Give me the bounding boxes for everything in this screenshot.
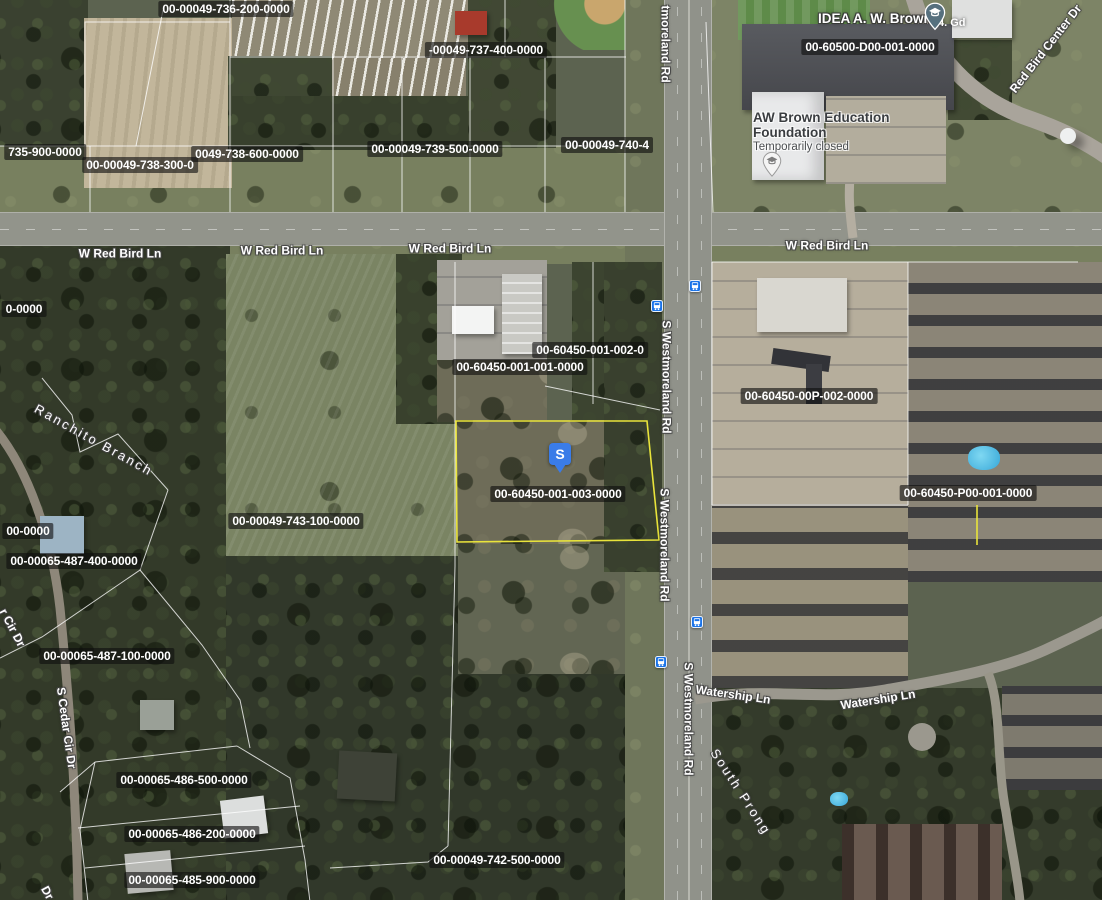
selected-parcel-marker[interactable]: S [549,443,571,465]
parcel-id-label[interactable]: 00-60450-001-001-0000 [452,359,587,375]
road-label: W Red Bird Ln [786,240,869,253]
road-label: Dr [38,884,56,900]
parcel-id-label[interactable]: -00049-737-400-0000 [425,42,547,58]
road-label: W Red Bird Ln [79,248,162,261]
poi-school-label[interactable]: IDEA A. W. Brown [818,11,932,26]
bus-stop-icon[interactable] [655,656,667,668]
parcel-id-label[interactable]: 00-60450-P00-001-0000 [900,485,1037,501]
parcel-id-label[interactable]: 00-00065-487-100-0000 [39,648,174,664]
poi-foundation-label[interactable]: AW Brown Education Foundation Temporaril… [753,110,890,155]
parcel-id-label[interactable]: 00-00049-739-500-0000 [367,141,502,157]
selected-parcel-marker-letter: S [555,446,564,462]
road-label: r Cir Dr [0,607,27,650]
poi-foundation-name-line1: AW Brown Education [753,110,890,125]
road-label: Watership Ln [695,683,772,706]
parcel-id-label[interactable]: 00-60450-001-003-0000 [490,486,625,502]
parcel-id-label[interactable]: 00-00049-738-300-0 [82,157,198,173]
parcel-id-label[interactable]: 735-900-0000 [4,144,86,160]
bus-stop-icon[interactable] [689,280,701,292]
parcel-id-label[interactable]: 00-60450-001-002-0 [532,342,648,358]
school-pin-icon[interactable] [924,2,946,31]
parcel-id-label[interactable]: 0049-738-600-0000 [191,146,303,162]
parcel-id-label[interactable]: 00-60500-D00-001-0000 [801,39,938,55]
road-label: S Cedar Cir Dr [54,686,78,769]
road-label: S Westmoreland Rd [660,320,673,433]
bus-stop-icon[interactable] [691,616,703,628]
parcel-id-label[interactable]: 00-00065-486-500-0000 [116,772,251,788]
parcel-id-label[interactable]: 00-00065-485-900-0000 [124,872,259,888]
road-label: Red Bird Center Dr [1008,2,1085,95]
parcel-id-label[interactable]: 0-0000 [2,301,47,317]
poi-foundation-name-line2: Foundation [753,125,890,140]
satellite-map-canvas[interactable]: 00-00049-736-200-0000-00049-737-400-0000… [0,0,1102,900]
bus-stop-icon[interactable] [651,300,663,312]
parcel-id-label[interactable]: 00-60450-00P-002-0000 [741,388,878,404]
water-label: Ranchito Branch [32,402,155,478]
parcel-id-label[interactable]: 00-00049-740-4 [561,137,653,153]
road-label: S Westmoreland Rd [682,662,695,775]
road-label: Watership Ln [840,688,917,713]
parcel-id-label[interactable]: 00-00049-742-500-0000 [429,852,564,868]
road-label: W Red Bird Ln [241,245,324,258]
road-label: S Westmoreland Rd [658,488,671,601]
parcel-id-label[interactable]: 00-00065-487-400-0000 [6,553,141,569]
parcel-id-label[interactable]: 00-00049-736-200-0000 [158,1,293,17]
parcel-id-label[interactable]: 00-00049-743-100-0000 [228,513,363,529]
water-label: South Prong [708,747,773,838]
parcel-id-label[interactable]: 00-00065-486-200-0000 [124,826,259,842]
closed-school-pin-icon[interactable] [762,151,782,178]
road-label: tmoreland Rd [659,5,672,82]
road-label: W Red Bird Ln [409,243,492,256]
parcel-id-label[interactable]: 00-0000 [2,523,53,539]
